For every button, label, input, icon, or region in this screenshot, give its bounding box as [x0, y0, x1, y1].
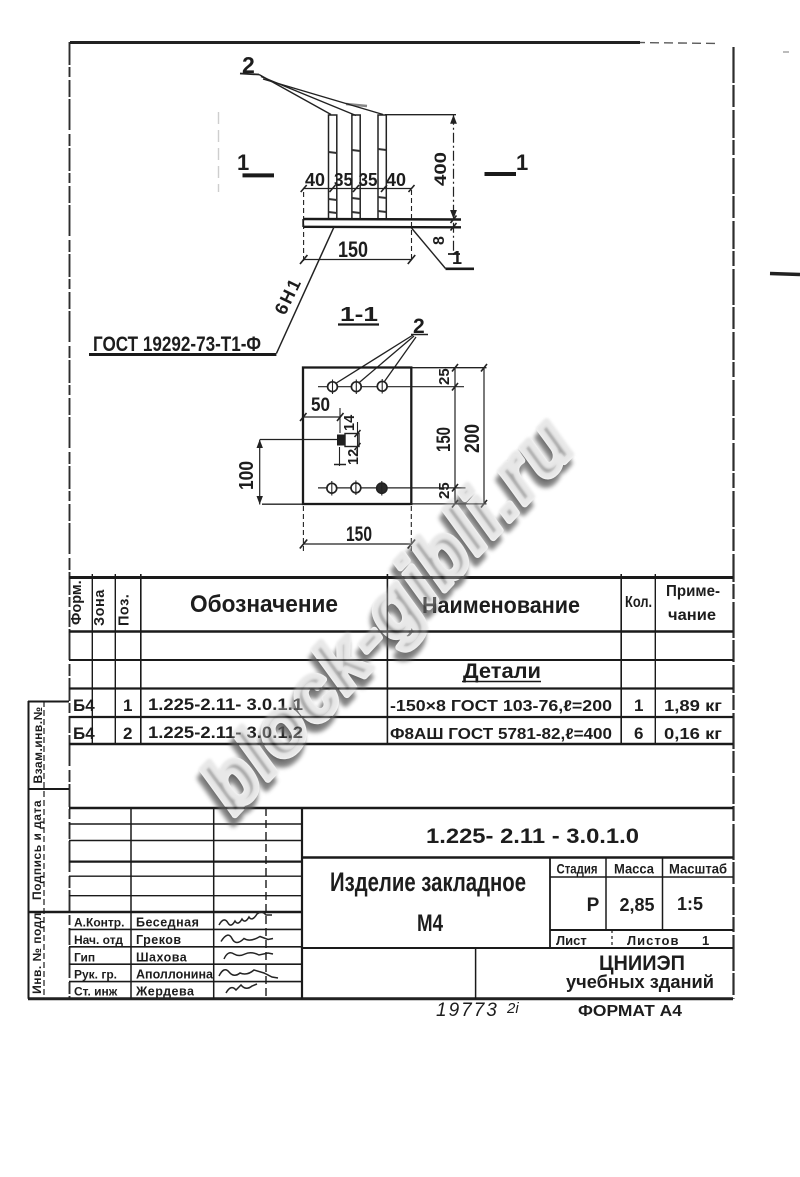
svg-text:Греков: Греков — [136, 933, 182, 947]
svg-text:Поз.: Поз. — [117, 594, 133, 626]
svg-text:1:5: 1:5 — [677, 894, 703, 914]
svg-text:Масса: Масса — [614, 862, 654, 877]
svg-text:Зона: Зона — [92, 589, 108, 626]
svg-text:19773: 19773 — [436, 1000, 499, 1021]
svg-text:2i: 2i — [506, 1000, 519, 1017]
svg-text:Гип: Гип — [74, 950, 95, 964]
svg-text:1: 1 — [237, 150, 249, 175]
svg-text:40: 40 — [305, 170, 325, 190]
svg-text:Б4: Б4 — [73, 724, 95, 743]
svg-text:150: 150 — [346, 523, 372, 546]
svg-text:2: 2 — [123, 724, 132, 743]
svg-text:Форм.: Форм. — [69, 580, 85, 625]
svg-text:Лист: Лист — [556, 933, 587, 948]
svg-text:Р: Р — [587, 895, 600, 916]
svg-text:Инв. № подл: Инв. № подл — [30, 912, 44, 994]
svg-text:40: 40 — [386, 170, 406, 190]
svg-text:Кол.: Кол. — [625, 594, 652, 611]
svg-text:Масштаб: Масштаб — [669, 862, 727, 877]
svg-text:Жердева: Жердева — [135, 985, 195, 999]
svg-text:6Н1: 6Н1 — [271, 274, 306, 318]
svg-text:А.Контр.: А.Контр. — [74, 916, 124, 930]
svg-text:учебных зданий: учебных зданий — [566, 972, 714, 992]
svg-text:12: 12 — [346, 449, 362, 465]
svg-text:Шахова: Шахова — [136, 950, 188, 964]
svg-text:Приме-: Приме- — [666, 583, 720, 600]
svg-text:Изделие закладное: Изделие закладное — [330, 867, 526, 897]
svg-text:1.225-2.11- 3.0.1.2: 1.225-2.11- 3.0.1.2 — [148, 724, 303, 742]
svg-text:1: 1 — [702, 933, 709, 948]
svg-text:150: 150 — [434, 427, 455, 452]
svg-text:чание: чание — [668, 607, 716, 624]
svg-text:150: 150 — [338, 237, 368, 262]
svg-text:-150×8 ГОСТ 103-76,ℓ=200: -150×8 ГОСТ 103-76,ℓ=200 — [390, 698, 612, 715]
svg-text:35: 35 — [334, 170, 353, 190]
svg-text:Б4: Б4 — [73, 696, 95, 715]
svg-text:1: 1 — [634, 696, 643, 715]
svg-text:1: 1 — [516, 150, 528, 175]
svg-text:Стадия: Стадия — [557, 862, 598, 877]
svg-text:6: 6 — [634, 724, 643, 743]
svg-text:Нач. отд: Нач. отд — [74, 933, 123, 947]
svg-text:1: 1 — [452, 248, 462, 268]
svg-text:Наименование: Наименование — [422, 592, 580, 618]
svg-text:25: 25 — [436, 368, 453, 385]
svg-text:ГОСТ 19292-73-Т1-Ф: ГОСТ 19292-73-Т1-Ф — [93, 333, 261, 356]
svg-text:25: 25 — [436, 482, 453, 499]
svg-text:Обозначение: Обозначение — [190, 591, 338, 618]
svg-text:Ст. инж: Ст. инж — [74, 985, 118, 999]
svg-text:1-1: 1-1 — [340, 304, 378, 326]
svg-text:8: 8 — [431, 236, 448, 245]
svg-text:М4: М4 — [417, 910, 444, 937]
svg-text:100: 100 — [236, 461, 258, 490]
svg-text:Рук. гр.: Рук. гр. — [74, 968, 117, 982]
svg-text:Беседная: Беседная — [136, 916, 199, 930]
svg-text:Ф8АШ ГОСТ 5781-82,ℓ=400: Ф8АШ ГОСТ 5781-82,ℓ=400 — [390, 726, 612, 743]
svg-text:1.225-2.11- 3.0.1.1: 1.225-2.11- 3.0.1.1 — [148, 696, 303, 714]
svg-text:0,16 кг: 0,16 кг — [664, 726, 723, 743]
svg-text:Подпись и дата: Подпись и дата — [30, 800, 44, 900]
svg-text:Листов: Листов — [627, 933, 679, 948]
svg-text:1,89 кг: 1,89 кг — [664, 698, 723, 715]
svg-text:Взам.инв.№: Взам.инв.№ — [31, 706, 45, 783]
svg-text:400: 400 — [431, 152, 450, 186]
svg-text:Детали: Детали — [463, 660, 541, 683]
svg-text:35: 35 — [359, 170, 378, 190]
svg-text:14: 14 — [342, 415, 358, 431]
svg-text:1.225- 2.11 - 3.0.1.0: 1.225- 2.11 - 3.0.1.0 — [426, 825, 639, 848]
svg-text:200: 200 — [461, 424, 484, 453]
svg-text:ФОРМАТ А4: ФОРМАТ А4 — [578, 1003, 682, 1020]
svg-text:2,85: 2,85 — [619, 895, 654, 915]
svg-text:Аполлонина: Аполлонина — [136, 968, 214, 982]
svg-text:1: 1 — [123, 696, 132, 715]
svg-text:50: 50 — [311, 395, 330, 416]
